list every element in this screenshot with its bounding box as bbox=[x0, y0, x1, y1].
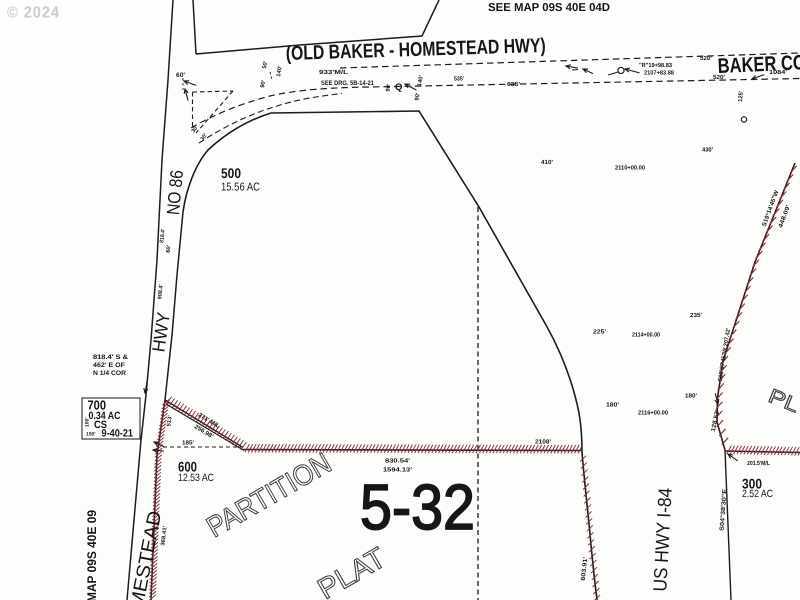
svg-text:520': 520' bbox=[713, 74, 726, 81]
svg-text:500: 500 bbox=[221, 165, 241, 181]
svg-text:100': 100' bbox=[85, 417, 91, 427]
svg-text:520': 520' bbox=[700, 55, 713, 62]
svg-text:1084': 1084' bbox=[769, 69, 788, 76]
svg-text:150': 150' bbox=[86, 432, 96, 438]
svg-text:2.52 AC: 2.52 AC bbox=[742, 488, 773, 500]
svg-text:125': 125' bbox=[737, 90, 745, 102]
svg-text:180': 180' bbox=[606, 402, 620, 409]
svg-text:15.56 AC: 15.56 AC bbox=[221, 182, 260, 194]
svg-text:430': 430' bbox=[702, 147, 714, 154]
svg-text:410': 410' bbox=[541, 159, 554, 166]
svg-text:NO 86: NO 86 bbox=[163, 169, 187, 216]
svg-text:201.5'M/L: 201.5'M/L bbox=[747, 460, 770, 467]
svg-text:513': 513' bbox=[166, 414, 173, 426]
svg-text:933'M/L: 933'M/L bbox=[319, 69, 348, 76]
svg-text:60': 60' bbox=[166, 244, 173, 253]
svg-text:9-40-21: 9-40-21 bbox=[102, 428, 134, 440]
svg-text:5-32: 5-32 bbox=[360, 471, 475, 543]
svg-text:SEE MAP 09S 40E 04D: SEE MAP 09S 40E 04D bbox=[488, 2, 610, 14]
svg-text:"R"19+98.83: "R"19+98.83 bbox=[639, 62, 673, 69]
svg-text:635': 635' bbox=[507, 81, 521, 88]
svg-text:12.53 AC: 12.53 AC bbox=[178, 472, 214, 484]
svg-text:225': 225' bbox=[593, 329, 607, 336]
svg-text:Q: Q bbox=[395, 82, 402, 93]
svg-text:830.54': 830.54' bbox=[385, 458, 411, 465]
svg-text:818.4' S &: 818.4' S & bbox=[93, 354, 128, 361]
svg-text:SEE DRG. 5B-14-21: SEE DRG. 5B-14-21 bbox=[321, 80, 374, 87]
svg-text:535': 535' bbox=[454, 76, 465, 83]
svg-text:235': 235' bbox=[690, 312, 703, 319]
svg-text:185': 185' bbox=[182, 440, 195, 447]
svg-text:2108': 2108' bbox=[535, 439, 552, 446]
svg-text:2107+83.88: 2107+83.88 bbox=[644, 70, 675, 77]
svg-text:462' E OF: 462' E OF bbox=[93, 362, 125, 369]
svg-text:MAP 09S 40E 09: MAP 09S 40E 09 bbox=[85, 510, 99, 600]
svg-text:2114+00.00: 2114+00.00 bbox=[632, 332, 661, 339]
svg-text:60': 60' bbox=[176, 72, 185, 79]
svg-text:N 1/4 COR: N 1/4 COR bbox=[93, 370, 126, 377]
svg-text:2110+00.00: 2110+00.00 bbox=[615, 165, 646, 172]
svg-text:© 2024: © 2024 bbox=[7, 5, 60, 22]
svg-text:180': 180' bbox=[685, 393, 698, 400]
svg-text:2116+00.00: 2116+00.00 bbox=[638, 410, 669, 417]
